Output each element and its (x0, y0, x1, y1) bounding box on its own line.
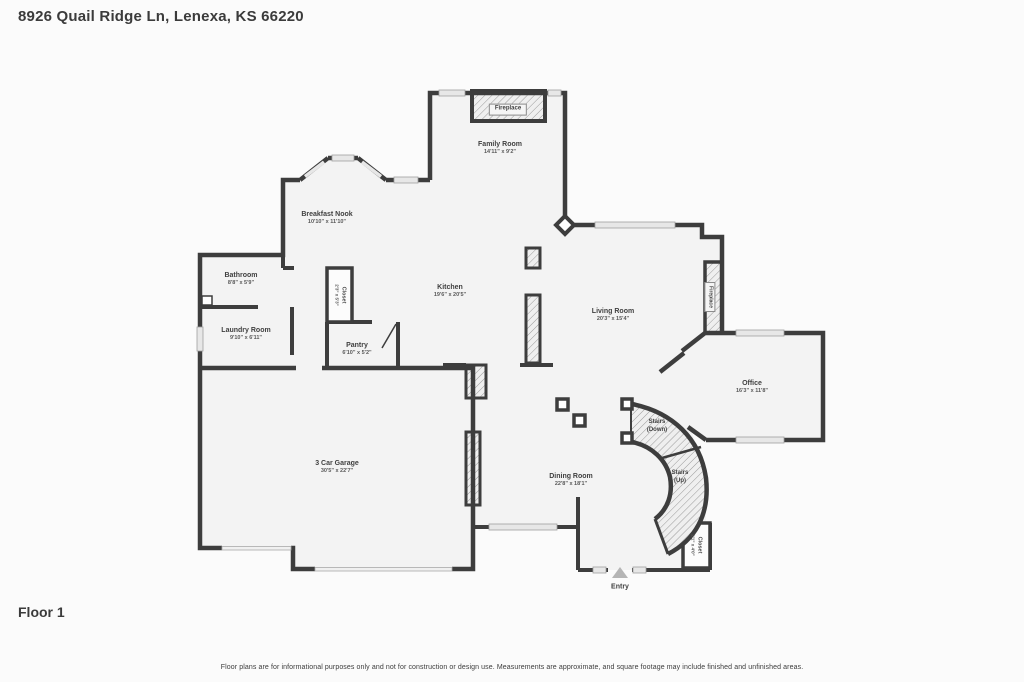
room-label-living-room: Living Room 20'3" x 15'4" (592, 307, 634, 323)
floor-plan: Family Room 14'11" x 9'2" Fireplace Brea… (0, 0, 1024, 682)
stair-post (622, 399, 632, 409)
room-label-dining-room: Dining Room 22'8" x 18'1" (549, 472, 593, 488)
room-label-closet-entry: Closet 2'1" x 4'0" (690, 534, 703, 555)
room-label-stairs-up: Stairs (Up) (672, 470, 689, 486)
kitchen-hatch-wall (526, 295, 540, 363)
room-label-breakfast-nook: Breakfast Nook 10'10" x 11'10" (301, 210, 352, 226)
stair-post (622, 433, 632, 443)
room-label-fireplace-family: Fireplace (489, 96, 527, 117)
room-label-laundry-room: Laundry Room 9'10" x 6'11" (221, 326, 270, 342)
room-label-kitchen: Kitchen 19'6" x 20'5" (434, 283, 466, 299)
room-label-pantry: Pantry 6'10" x 5'2" (342, 341, 371, 357)
room-label-garage: 3 Car Garage 30'5" x 22'7" (315, 459, 359, 475)
room-label-bathroom: Bathroom 8'8" x 5'9" (224, 271, 257, 287)
room-label-closet-kitchen: Closet 2'3" x 5'3" (334, 284, 347, 305)
room-label-family-room: Family Room 14'11" x 9'2" (478, 140, 522, 156)
kitchen-hatch-stub (526, 248, 540, 268)
room-label-fireplace-living: Fireplace (703, 282, 724, 312)
bathroom-niche (202, 296, 212, 305)
room-label-stairs-down: Stairs (Down) (647, 419, 667, 435)
room-label-entry: Entry (611, 582, 629, 591)
floorplan-page: 8926 Quail Ridge Ln, Lenexa, KS 66220 (0, 0, 1024, 682)
disclaimer: Floor plans are for informational purpos… (0, 664, 1024, 671)
floor-label: Floor 1 (18, 604, 65, 620)
room-label-office: Office 16'3" x 11'8" (736, 379, 768, 395)
